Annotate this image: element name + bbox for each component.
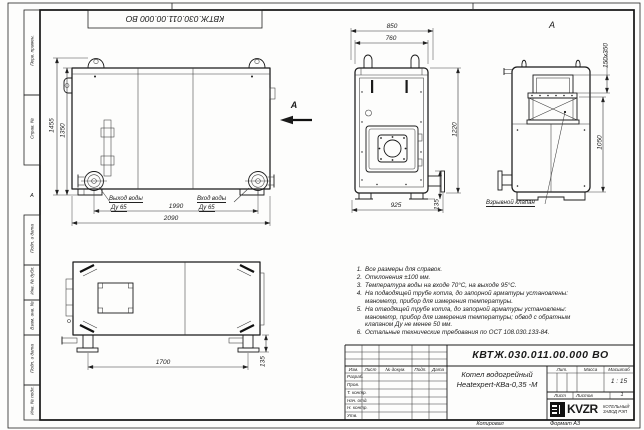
margin-label-inv-podl: Инв. № подл. xyxy=(30,371,35,430)
tb-col-list: Лист xyxy=(362,367,379,372)
dim-height-body: 1350 xyxy=(60,111,67,151)
margin-label-perv-primen: Перв. примен. xyxy=(30,21,35,81)
tb-lit-label: Лит. xyxy=(547,367,577,372)
plan-view xyxy=(62,262,269,370)
doc-name-line2: Heatexpert-КВа-0,35 -М xyxy=(447,380,547,389)
tb-row-utv: Утв. xyxy=(347,413,357,418)
note-item: 3.Температура воды на входе 70°С, на вых… xyxy=(352,282,594,290)
tb-row-tkontr: Т. контр. xyxy=(347,390,367,395)
doc-number-top: КВТЖ.030.011.00.000 ВО xyxy=(88,10,262,28)
zone-letter: А xyxy=(25,193,39,199)
dim-rear-1050: 1050 xyxy=(597,123,604,163)
dim-front-850: 850 xyxy=(372,23,412,30)
tb-mass-label: Масса xyxy=(577,367,604,372)
factory-name: КОТЕЛЬНЫЙ ЗАВОД РЭП xyxy=(603,404,633,414)
note-item: 4.На подводящей трубе котла, до запорной… xyxy=(352,290,594,305)
dim-width-total: 2090 xyxy=(151,215,191,222)
dim-span-flanges: 1990 xyxy=(156,203,196,210)
format-label: Формат А3 xyxy=(540,421,590,427)
rear-view xyxy=(498,50,610,204)
view-arrow-label: А xyxy=(284,100,304,110)
view-arrow-icon xyxy=(280,116,312,124)
copy-label: Копировал xyxy=(460,421,520,427)
dim-front-925: 925 xyxy=(376,202,416,209)
tb-sheet-label: Лист xyxy=(547,393,573,398)
margin-label-sprav-no: Справ. № xyxy=(30,99,35,159)
tb-col-date: Дата xyxy=(429,367,447,372)
inlet-label: Вход воды xyxy=(197,196,226,203)
drawing-linework: .ol{stroke:#1a1a1a;stroke-width:1.25;fil… xyxy=(0,0,644,430)
kvzr-brand: KVZR xyxy=(567,402,598,416)
dim-rear-flue: 150х350 xyxy=(603,34,610,78)
tb-row-razrab: Разраб. xyxy=(347,374,364,379)
outlet-dn: Ду 65 xyxy=(111,205,127,212)
inlet-dn: Ду 65 xyxy=(199,205,215,212)
drawing-sheet: .ol{stroke:#1a1a1a;stroke-width:1.25;fil… xyxy=(0,0,644,430)
doc-number: КВТЖ.030.011.00.000 ВО xyxy=(447,349,634,361)
side-view xyxy=(53,58,312,226)
front-view xyxy=(351,28,461,213)
tb-sheets-label: Листов xyxy=(576,393,593,398)
tb-row-prov: Пров. xyxy=(347,382,359,387)
explosion-valve-label: Взрывной клапан xyxy=(486,200,535,207)
note-item: 2.Отклонения ±100 мм. xyxy=(352,274,594,282)
tb-col-izm: Изм. xyxy=(345,367,362,372)
dim-front-760: 760 xyxy=(371,35,411,42)
kvzr-logo-icon xyxy=(550,402,565,417)
tb-row-nkontr: Н. контр. xyxy=(347,405,368,410)
dim-front-1220: 1220 xyxy=(452,110,459,150)
note-item: 1.Все размеры для справок. xyxy=(352,266,594,274)
rear-view-label: А xyxy=(542,20,562,30)
note-item: 6.Остальные технические требования по ОС… xyxy=(352,329,594,337)
technical-notes: 1.Все размеры для справок. 2.Отклонения … xyxy=(352,266,594,337)
scale-value: 1 : 15 xyxy=(604,378,634,385)
tb-row-nachotd: Нач. отд. xyxy=(347,398,368,403)
dim-plan-135: 135 xyxy=(260,342,267,382)
note-item: 5.На отводящей трубе котла, до запорной … xyxy=(352,306,594,329)
doc-name-line1: Котел водогрейный xyxy=(447,370,547,379)
tb-scale-label: Масштаб xyxy=(604,367,634,372)
dim-height-total: 1455 xyxy=(49,106,56,146)
sheets-value: 1 xyxy=(610,392,634,398)
tb-col-sign: Подп. xyxy=(412,367,429,372)
dim-front-135: 135 xyxy=(434,185,441,225)
tb-col-doc: № докум. xyxy=(379,367,412,372)
dim-plan-1700: 1700 xyxy=(143,359,183,366)
outlet-label: Выход воды xyxy=(109,196,143,203)
